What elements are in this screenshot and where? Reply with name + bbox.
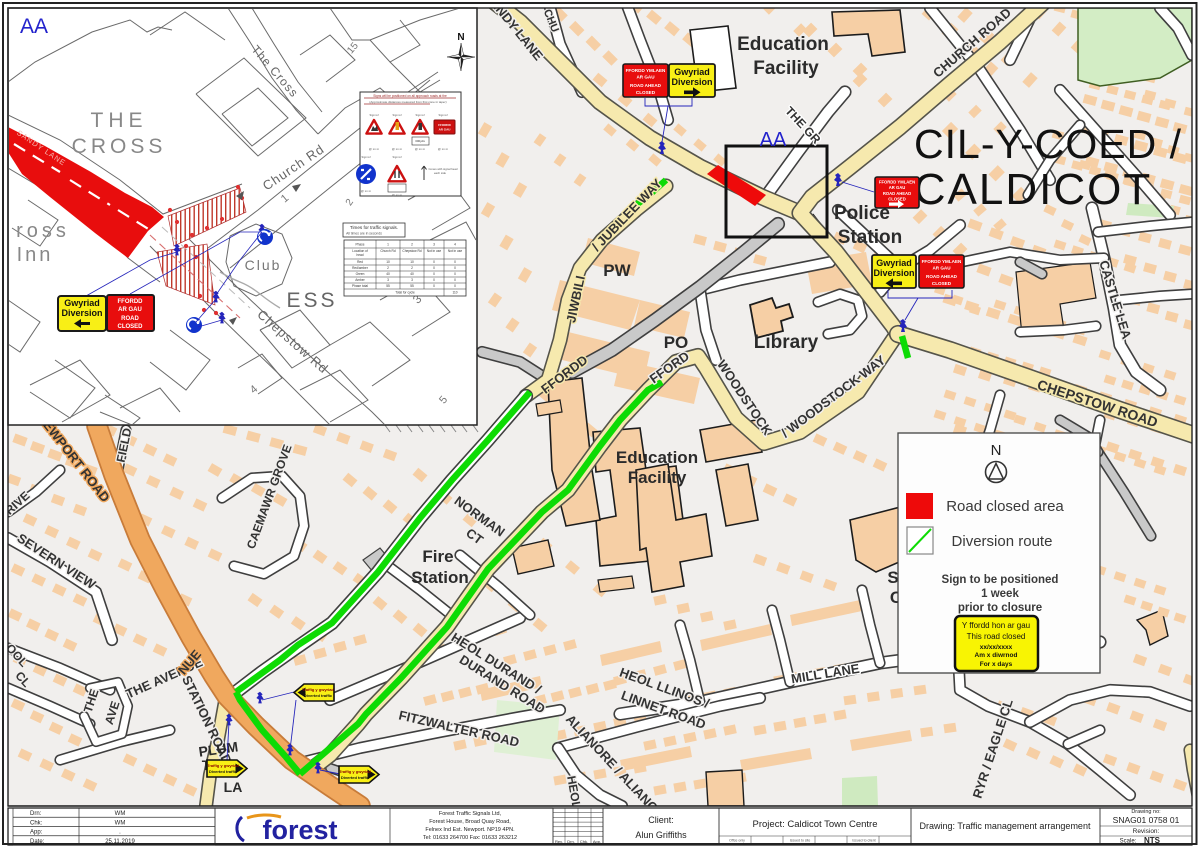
svg-text:1 week: 1 week — [981, 588, 1019, 600]
svg-text:Chepstow Rd: Chepstow Rd — [402, 249, 421, 253]
svg-text:Not in use: Not in use — [427, 249, 442, 253]
svg-text:AR GAU: AR GAU — [636, 75, 655, 80]
svg-text:Diversion: Diversion — [61, 308, 102, 318]
svg-text:55: 55 — [410, 284, 414, 288]
svg-text:Red/amber: Red/amber — [352, 266, 369, 270]
svg-text:@ xx m: @ xx m — [369, 147, 380, 151]
svg-text:WM: WM — [115, 811, 126, 817]
svg-text:Fire: Fire — [422, 547, 453, 566]
svg-text:@ xx m: @ xx m — [392, 147, 403, 151]
svg-text:FFORDD YMLAEN: FFORDD YMLAEN — [626, 68, 666, 73]
svg-text:Traffig y gwyriad: Traffig y gwyriad — [207, 763, 239, 768]
svg-text:(Approximate distances measure: (Approximate distances measured from fir… — [369, 100, 446, 104]
svg-text:0: 0 — [454, 284, 456, 288]
svg-text:Sign ref: Sign ref — [416, 113, 425, 117]
svg-text:Station: Station — [411, 568, 469, 587]
svg-text:Am x diwrnod: Am x diwrnod — [975, 652, 1018, 659]
svg-text:CLOSED: CLOSED — [932, 281, 952, 286]
svg-text:Red: Red — [357, 260, 363, 264]
svg-text:ROAD AHEAD: ROAD AHEAD — [926, 274, 958, 279]
svg-text:THE: THE — [91, 109, 148, 132]
svg-text:App:: App: — [30, 830, 43, 836]
svg-text:0: 0 — [454, 272, 456, 276]
svg-text:AA: AA — [20, 15, 48, 38]
svg-text:This road closed: This road closed — [967, 632, 1026, 641]
svg-text:FFORDD YMLAEN: FFORDD YMLAEN — [922, 259, 962, 264]
svg-text:3: 3 — [411, 278, 413, 282]
svg-text:Revision:: Revision: — [1133, 828, 1160, 835]
svg-text:xx/xx/xxxx: xx/xx/xxxx — [980, 644, 1013, 651]
svg-text:Signs will be positioned on al: Signs will be positioned on all approach… — [373, 94, 447, 98]
svg-text:CROSS: CROSS — [72, 135, 167, 158]
svg-text:110: 110 — [452, 291, 457, 295]
svg-text:Offce only: Offce only — [729, 839, 745, 843]
svg-text:10: 10 — [386, 260, 390, 264]
svg-text:Forest House, Broad Quay Road,: Forest House, Broad Quay Road, — [429, 819, 511, 825]
svg-text:0: 0 — [433, 272, 435, 276]
svg-text:3: 3 — [387, 278, 389, 282]
svg-text:prior to closure: prior to closure — [958, 602, 1042, 614]
svg-text:10: 10 — [410, 260, 414, 264]
svg-text:Library: Library — [754, 332, 819, 353]
svg-text:Diversion: Diversion — [671, 77, 712, 87]
svg-text:ROAD AHEAD: ROAD AHEAD — [883, 191, 911, 196]
svg-text:Sign ref: Sign ref — [393, 155, 402, 159]
svg-text:Issued to site: Issued to site — [790, 839, 811, 843]
svg-text:40: 40 — [410, 272, 414, 276]
svg-text:CLOSED: CLOSED — [888, 197, 905, 202]
svg-text:FFORDD: FFORDD — [438, 123, 451, 127]
svg-text:AR GAU: AR GAU — [439, 128, 451, 132]
svg-text:Not in use: Not in use — [448, 249, 463, 253]
svg-text:Diversion: Diversion — [873, 268, 914, 278]
svg-text:0: 0 — [454, 278, 456, 282]
svg-text:For x days: For x days — [980, 661, 1013, 668]
svg-text:Amber: Amber — [355, 278, 365, 282]
svg-text:CALDICOT: CALDICOT — [914, 165, 1152, 214]
svg-text:Gwyriad: Gwyriad — [674, 67, 710, 77]
svg-text:PO: PO — [664, 333, 689, 352]
svg-text:Church Rd: Church Rd — [380, 249, 395, 253]
svg-text:AR GAU: AR GAU — [889, 185, 906, 190]
svg-text:300yds: 300yds — [415, 139, 425, 143]
svg-text:WM: WM — [115, 820, 126, 826]
svg-text:@ xx m: @ xx m — [361, 189, 372, 193]
svg-text:ROAD AHEAD: ROAD AHEAD — [630, 83, 662, 88]
svg-text:Facility: Facility — [753, 58, 819, 79]
svg-text:Phase total: Phase total — [352, 284, 368, 288]
svg-text:@ xx m: @ xx m — [415, 147, 426, 151]
svg-text:Forest Traffic Signals Ltd,: Forest Traffic Signals Ltd, — [439, 811, 502, 817]
svg-text:LA: LA — [224, 779, 243, 795]
svg-text:Education: Education — [737, 34, 829, 55]
svg-text:@ xx m: @ xx m — [392, 193, 403, 197]
svg-text:AR GAU: AR GAU — [118, 307, 142, 313]
svg-text:0: 0 — [433, 260, 435, 264]
svg-text:Green: Green — [356, 272, 365, 276]
svg-text:0: 0 — [433, 266, 435, 270]
svg-text:S: S — [887, 568, 898, 587]
svg-text:Club: Club — [245, 257, 282, 273]
svg-text:Diverted traffic: Diverted traffic — [304, 693, 333, 698]
svg-text:ross: ross — [16, 220, 70, 242]
svg-text:Education: Education — [616, 448, 698, 467]
svg-text:40: 40 — [386, 272, 390, 276]
svg-text:SNAG01 0758 01: SNAG01 0758 01 — [1113, 815, 1180, 825]
svg-text:Diverted traffic: Diverted traffic — [209, 769, 238, 774]
svg-text:2: 2 — [387, 266, 389, 270]
svg-text:@ xx m: @ xx m — [438, 147, 449, 151]
svg-text:Sign ref: Sign ref — [370, 113, 379, 117]
svg-text:Road closed area: Road closed area — [946, 498, 1064, 515]
svg-text:Client:: Client: — [648, 815, 674, 825]
svg-text:Sign ref: Sign ref — [393, 113, 402, 117]
svg-text:2: 2 — [411, 243, 413, 247]
svg-text:Tel: 01633 264700 Fax: 01633 2: Tel: 01633 264700 Fax: 01633 263212 — [423, 835, 517, 841]
svg-text:CLOSED: CLOSED — [117, 324, 143, 330]
svg-text:Facility: Facility — [628, 468, 687, 487]
svg-text:ESS: ESS — [286, 289, 337, 312]
svg-text:each side: each side — [434, 171, 446, 175]
svg-text:1: 1 — [387, 243, 389, 247]
svg-text:N: N — [991, 442, 1002, 459]
svg-text:N: N — [457, 32, 464, 43]
svg-text:Traffig y gwyriad: Traffig y gwyriad — [302, 687, 334, 692]
svg-text:Phase: Phase — [355, 243, 364, 247]
svg-text:CIL-Y-COED /: CIL-Y-COED / — [914, 121, 1182, 167]
svg-text:Y ffordd hon ar gau: Y ffordd hon ar gau — [962, 621, 1030, 630]
svg-text:FFORDD: FFORDD — [118, 299, 144, 305]
svg-text:PW: PW — [603, 261, 631, 280]
svg-text:AR GAU: AR GAU — [932, 266, 951, 271]
svg-text:3: 3 — [433, 243, 435, 247]
svg-text:Diversion route: Diversion route — [952, 533, 1053, 550]
svg-text:Station: Station — [838, 227, 902, 248]
svg-text:head: head — [356, 253, 363, 257]
svg-text:All times are in seconds: All times are in seconds — [346, 232, 382, 236]
svg-text:0: 0 — [433, 284, 435, 288]
svg-text:Sign to be positioned: Sign to be positioned — [942, 574, 1059, 586]
svg-text:CLOSED: CLOSED — [636, 90, 656, 95]
svg-text:4: 4 — [454, 243, 456, 247]
svg-text:Chk:: Chk: — [30, 820, 43, 826]
svg-text:Sign ref: Sign ref — [362, 155, 371, 159]
svg-text:Diverted traffic: Diverted traffic — [341, 775, 370, 780]
svg-text:0: 0 — [433, 278, 435, 282]
svg-text:Issued to client: Issued to client — [852, 839, 875, 843]
svg-text:Gwyriad: Gwyriad — [64, 298, 100, 308]
svg-text:Drn:: Drn: — [30, 811, 42, 817]
svg-text:55: 55 — [386, 284, 390, 288]
svg-text:AA: AA — [760, 129, 787, 151]
svg-text:0: 0 — [454, 260, 456, 264]
svg-text:0: 0 — [454, 266, 456, 270]
svg-text:Drawing: Traffic management ar: Drawing: Traffic management arrangement — [920, 821, 1091, 831]
svg-text:ROAD: ROAD — [121, 316, 139, 322]
svg-text:FFORDD YMLAEN: FFORDD YMLAEN — [879, 180, 915, 185]
svg-text:Alun Griffiths: Alun Griffiths — [635, 830, 687, 840]
svg-text:forest: forest — [262, 815, 337, 845]
svg-text:2: 2 — [411, 266, 413, 270]
svg-text:Traffig y gwyriad: Traffig y gwyriad — [339, 769, 371, 774]
svg-text:Project: Caldicot Town Centre: Project: Caldicot Town Centre — [753, 819, 878, 830]
svg-text:Times for traffic signals.: Times for traffic signals. — [350, 225, 398, 230]
svg-text:Total for cycle: Total for cycle — [395, 291, 415, 295]
svg-text:Sign ref: Sign ref — [439, 113, 448, 117]
svg-text:Gwyriad: Gwyriad — [876, 258, 912, 268]
svg-text:Felnex Ind Est. Newport. NP19: Felnex Ind Est. Newport. NP19 4PN. — [425, 827, 515, 833]
svg-text:Inn: Inn — [17, 244, 54, 266]
